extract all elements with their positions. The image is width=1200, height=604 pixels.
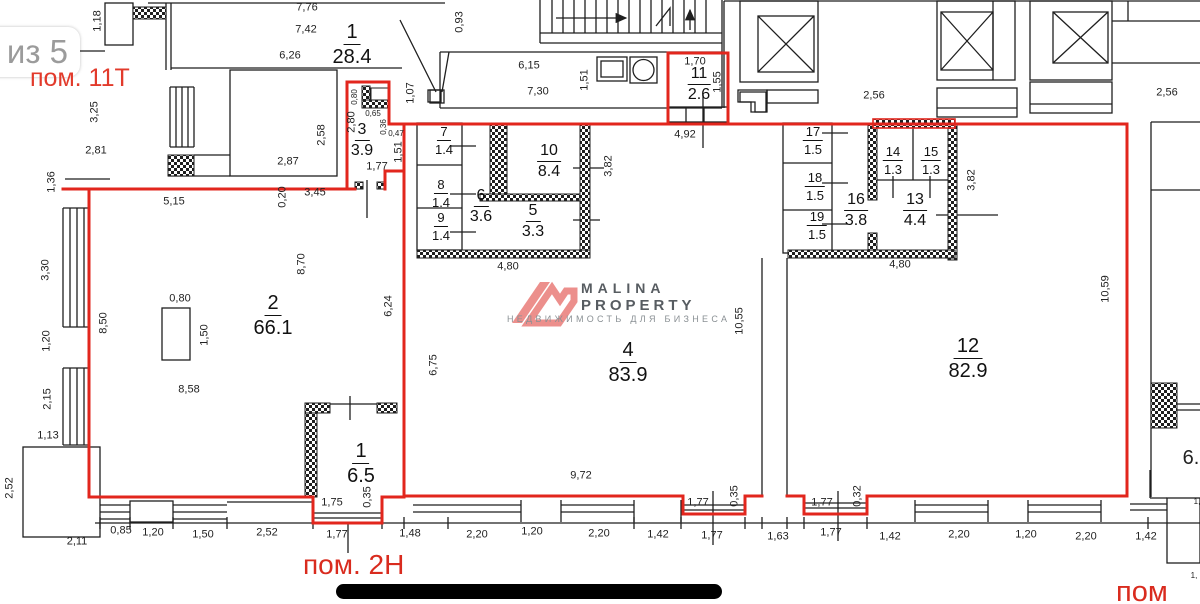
dim-label: 2,52 xyxy=(5,477,16,498)
room-label: 108.4 xyxy=(537,143,561,180)
dim-label: 0,35 xyxy=(363,486,374,507)
premise-label-11t: пом. 11Т xyxy=(30,64,130,93)
room-label: 181.5 xyxy=(805,171,825,202)
room-label: 81.4 xyxy=(432,178,450,209)
dim-label: 0,80 xyxy=(351,89,359,105)
dim-label: 2,20 xyxy=(466,530,487,541)
dim-label: 1,42 xyxy=(879,532,900,543)
dim-label: 1,20 xyxy=(42,330,53,351)
dim-label: 8,70 xyxy=(297,253,308,274)
dim-label: 3,82 xyxy=(604,155,615,176)
dim-label: 1,20 xyxy=(521,527,542,538)
dim-label: 0,80 xyxy=(169,294,190,305)
dim-label: 1,42 xyxy=(647,530,668,541)
scale-bar xyxy=(336,584,722,599)
dim-label: 0,32 xyxy=(853,485,864,506)
dim-label: 2,52 xyxy=(256,528,277,539)
room-label: 151.3 xyxy=(921,145,941,176)
dim-label: 1,48 xyxy=(399,529,420,540)
dim-label: 7,42 xyxy=(295,25,316,36)
dim-label: 3,82 xyxy=(967,169,978,190)
dim-label: 2,20 xyxy=(1075,532,1096,543)
dim-label: 2,58 xyxy=(317,124,328,145)
room-label: 163.8 xyxy=(844,192,868,229)
dim-label: 1,77 xyxy=(701,531,722,542)
dim-label: 2,56 xyxy=(1156,88,1177,99)
dim-label: 3,30 xyxy=(41,259,52,280)
room-label: 134.4 xyxy=(903,192,927,229)
dim-label: 0,93 xyxy=(455,11,466,32)
dim-label: 10,59 xyxy=(1101,275,1112,303)
dim-label: 1,77 xyxy=(326,530,347,541)
room-label: 483.9 xyxy=(609,340,648,385)
dim-label: 0,85 xyxy=(110,526,131,537)
dim-label: 1,70 xyxy=(684,57,705,68)
dim-label: 1,18 xyxy=(93,10,104,31)
dim-label: 9,72 xyxy=(570,471,591,482)
dim-label: 5,15 xyxy=(163,197,184,208)
dim-label: 0,36 xyxy=(380,119,388,135)
dim-label: 1,50 xyxy=(192,530,213,541)
dim-label: 10,55 xyxy=(735,307,746,335)
dim-label: 0,47 xyxy=(388,130,404,138)
dim-label: 6,75 xyxy=(429,354,440,375)
room-label: 63.6 xyxy=(470,188,492,225)
dim-label: 6. xyxy=(1183,448,1200,468)
dim-label: 1,51 xyxy=(394,141,405,162)
dim-label: 1,51 xyxy=(580,69,591,90)
dim-label: 0,65 xyxy=(365,110,381,118)
dim-label: 7,30 xyxy=(527,87,548,98)
dim-label: 1,13 xyxy=(37,431,58,442)
room-label: 171.5 xyxy=(803,125,823,156)
dim-label: 2,15 xyxy=(43,388,54,409)
dim-label: 3,25 xyxy=(90,101,101,122)
room-label: 53.3 xyxy=(522,203,544,240)
room-label: 191.5 xyxy=(807,210,827,241)
dim-label: 1,55 xyxy=(713,71,724,92)
dim-label: 0,35 xyxy=(730,485,741,506)
dim-label: 6,24 xyxy=(384,295,395,316)
dim-label: 1,75 xyxy=(321,498,342,509)
room-label: 141.3 xyxy=(883,145,903,176)
dim-label: 1,42 xyxy=(1135,532,1156,543)
dim-label: 1,20 xyxy=(1015,530,1036,541)
room-label: 112.6 xyxy=(688,66,711,103)
dim-label: 6,26 xyxy=(279,51,300,62)
dim-label: 2,20 xyxy=(948,530,969,541)
dim-label: 4,92 xyxy=(674,130,695,141)
dim-label: 1,77 xyxy=(811,498,832,509)
dim-label: 2,11 xyxy=(67,537,88,548)
dim-label: 1,77 xyxy=(366,162,387,173)
room-label: 128.4 xyxy=(333,22,372,67)
watermark-line1: MALINA xyxy=(581,280,665,296)
dim-label: 2,20 xyxy=(588,529,609,540)
dim-label: 6,15 xyxy=(518,61,539,72)
watermark-tagline: НЕДВИЖИМОСТЬ ДЛЯ БИЗНЕСА xyxy=(507,314,730,324)
room-label: 1282.9 xyxy=(949,336,988,381)
dim-label: 1,36 xyxy=(47,171,58,192)
dim-label: 4,80 xyxy=(497,262,518,273)
room-label: 16.5 xyxy=(347,441,375,486)
dim-label: 8,58 xyxy=(178,385,199,396)
dim-label: 2,56 xyxy=(863,91,884,102)
dim-label: 8,50 xyxy=(99,312,110,333)
room-label: 266.1 xyxy=(254,293,293,338)
dim-label: 1,20 xyxy=(142,528,163,539)
floorplan-stage: 128.433.9112.671.4108.481.463.691.453.31… xyxy=(0,0,1200,604)
dim-label: 2,87 xyxy=(277,157,298,168)
dim-label: 1,77 xyxy=(687,498,708,509)
dim-label: 1, xyxy=(1191,572,1198,580)
room-label: 91.4 xyxy=(432,211,450,242)
premise-label-bottom-right: пом xyxy=(1116,576,1168,604)
dim-label: 2,81 xyxy=(85,146,106,157)
dim-label: 4,80 xyxy=(889,260,910,271)
dim-label: 1,07 xyxy=(406,82,417,103)
premise-label-2n: пом. 2Н xyxy=(303,549,404,581)
dim-label: 1,63 xyxy=(767,532,788,543)
dim-label: 1, xyxy=(1194,498,1200,506)
dim-label: 1,77 xyxy=(820,528,841,539)
dim-label: 7,76 xyxy=(296,3,317,14)
dim-label: 3,45 xyxy=(304,188,325,199)
dim-label: 1,50 xyxy=(200,324,211,345)
watermark-line2: PROPERTY xyxy=(581,297,696,314)
room-label: 71.4 xyxy=(435,125,453,156)
dim-label: 0,20 xyxy=(278,186,289,207)
dim-label: 2,80 xyxy=(347,111,358,132)
